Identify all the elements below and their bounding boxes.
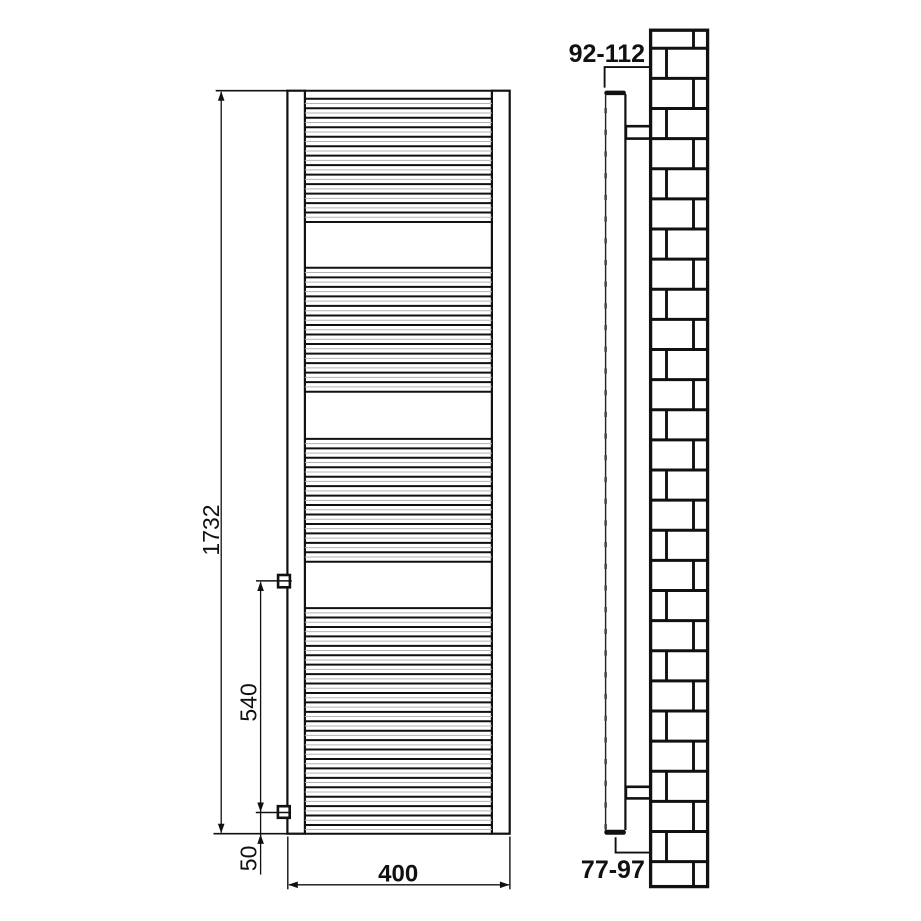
svg-text:50: 50 <box>236 846 262 872</box>
svg-text:77-97: 77-97 <box>581 856 645 884</box>
svg-text:540: 540 <box>235 683 261 721</box>
svg-text:400: 400 <box>378 860 418 887</box>
svg-text:1732: 1732 <box>198 504 224 555</box>
svg-text:92-112: 92-112 <box>569 40 645 68</box>
